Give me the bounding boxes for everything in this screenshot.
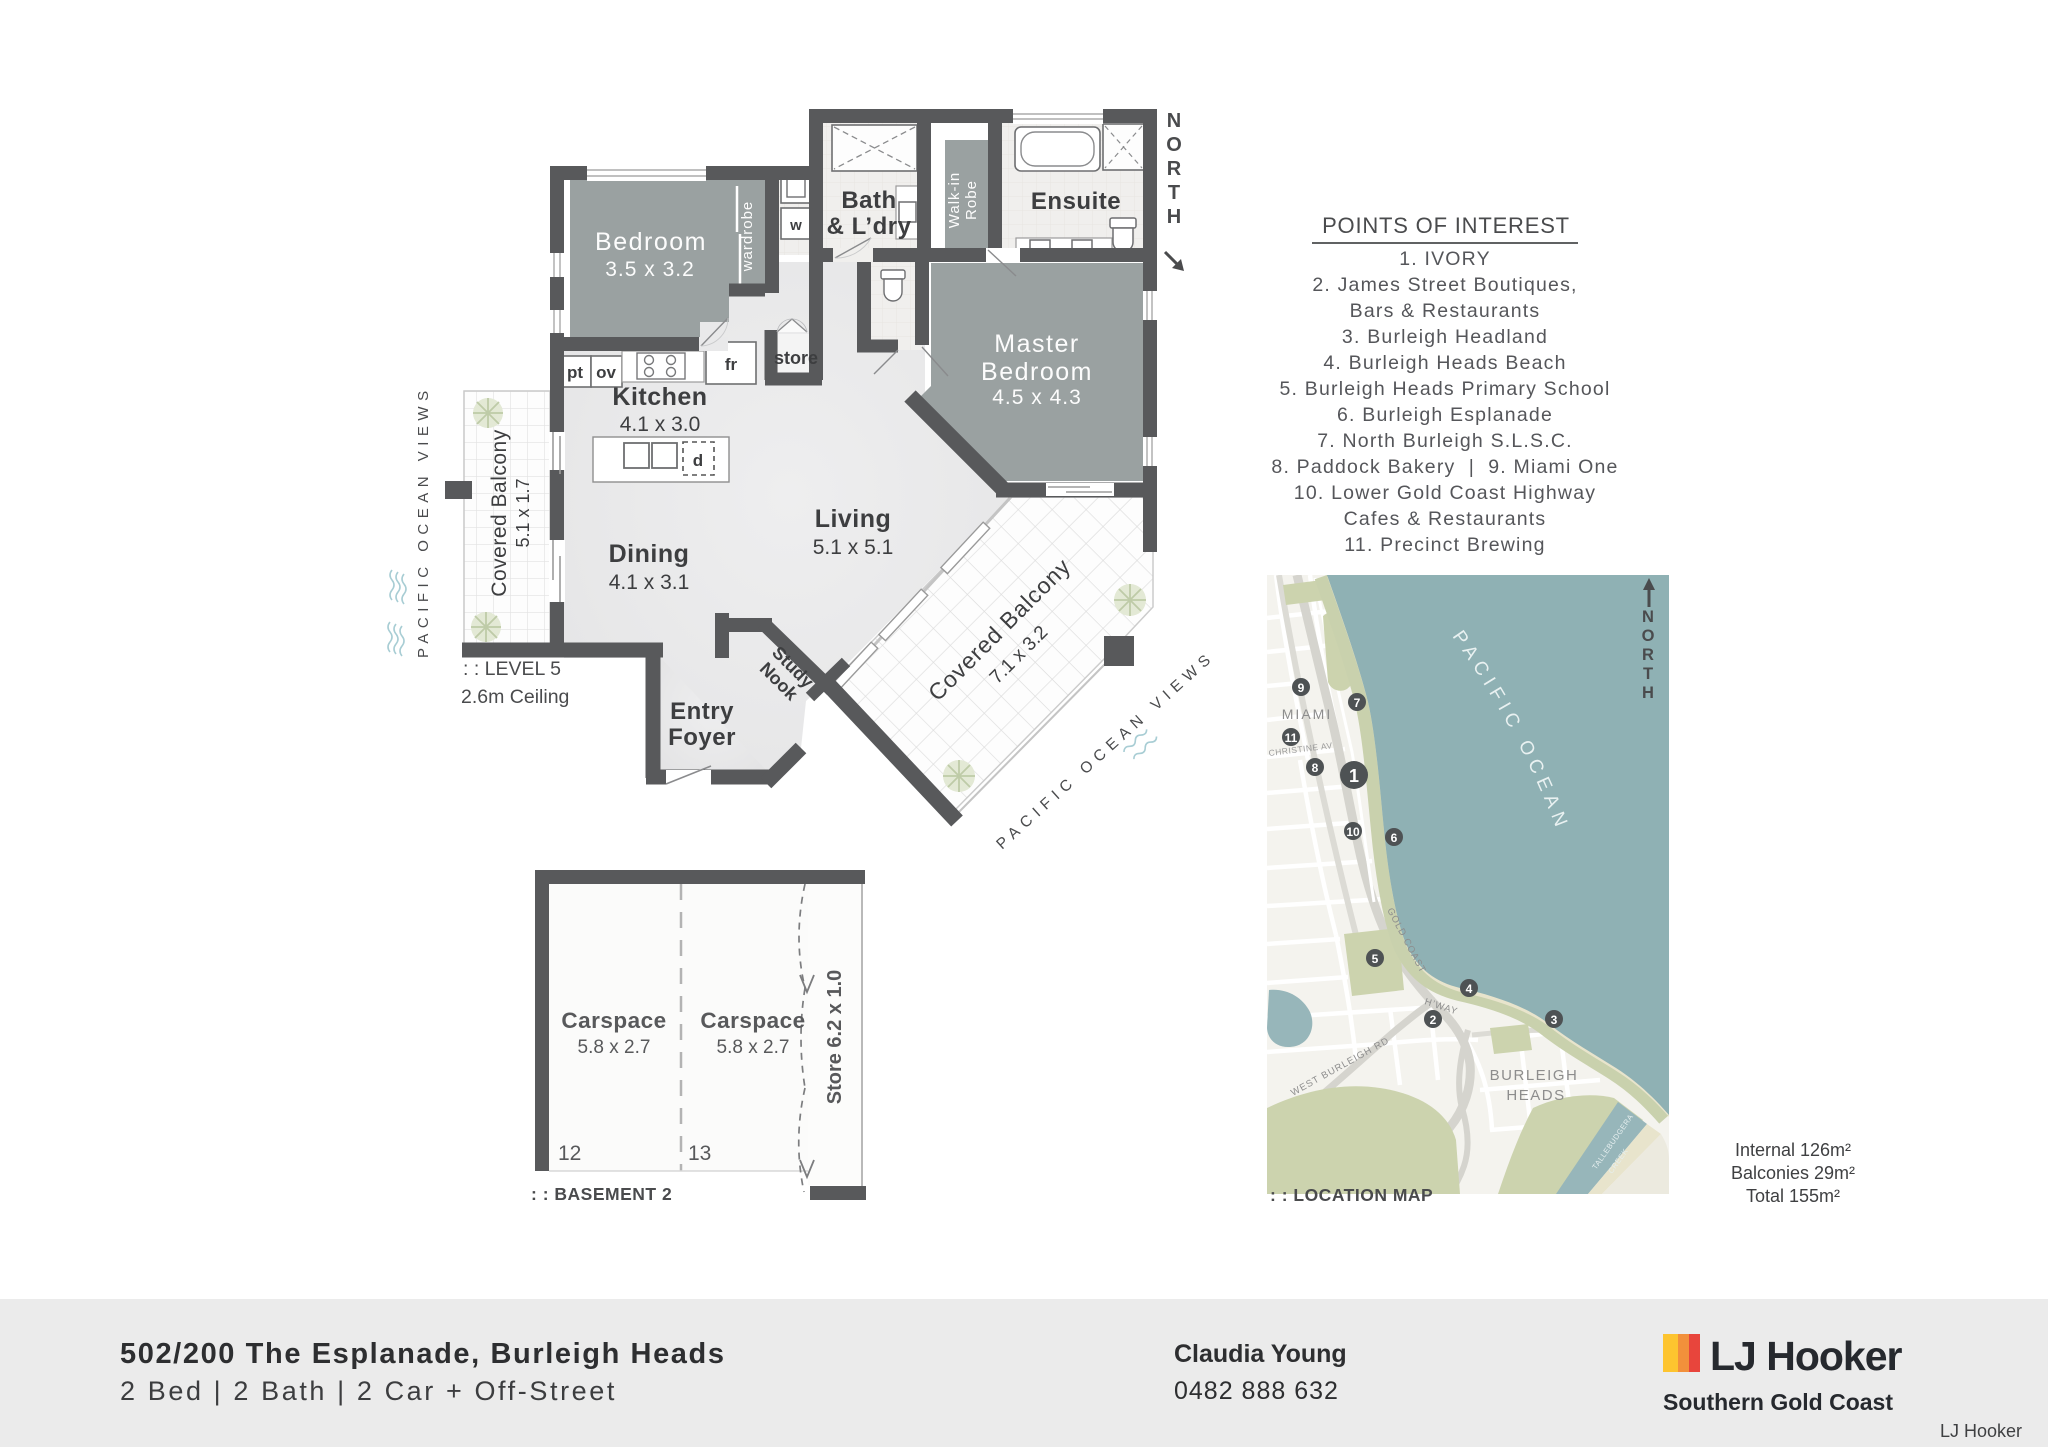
svg-text:1: 1 (1349, 766, 1359, 786)
svg-text:4: 4 (1466, 982, 1473, 996)
svg-text:MIAMI: MIAMI (1282, 706, 1332, 722)
svg-text:2 Bed | 2 Bath | 2 Car + Off-S: 2 Bed | 2 Bath | 2 Car + Off-Street (120, 1376, 617, 1406)
svg-text:Carspace: Carspace (700, 1008, 805, 1033)
svg-text:Covered Balcony: Covered Balcony (488, 429, 511, 596)
svg-text:5.1 x 1.7: 5.1 x 1.7 (513, 478, 533, 547)
svg-text:5.8 x 2.7: 5.8 x 2.7 (578, 1037, 651, 1058)
svg-text:3: 3 (1551, 1013, 1558, 1027)
svg-text:R: R (1167, 158, 1182, 180)
svg-text:Entry: Entry (670, 698, 734, 725)
svg-text:Robe: Robe (963, 180, 980, 220)
svg-text:PACIFIC OCEAN VIEWS: PACIFIC OCEAN VIEWS (415, 385, 432, 658)
svg-text:Southern Gold Coast: Southern Gold Coast (1663, 1389, 1893, 1415)
svg-text:2. James Street Boutiques,: 2. James Street Boutiques, (1312, 274, 1577, 296)
svg-text:& L’dry: & L’dry (827, 213, 912, 240)
svg-text:4. Burleigh Heads Beach: 4. Burleigh Heads Beach (1323, 352, 1566, 374)
svg-text:Living: Living (815, 505, 892, 533)
svg-text:4.1 x 3.1: 4.1 x 3.1 (609, 571, 690, 594)
svg-text:Foyer: Foyer (668, 724, 736, 751)
svg-text:O: O (1642, 627, 1655, 645)
svg-text:4.1 x 3.0: 4.1 x 3.0 (620, 413, 701, 436)
svg-text:3.5 x 3.2: 3.5 x 3.2 (605, 258, 695, 281)
svg-text:N: N (1167, 110, 1181, 132)
svg-text:LJ Hooker: LJ Hooker (1940, 1421, 2022, 1441)
svg-text:7: 7 (1354, 696, 1361, 710)
svg-text:Internal 126m²: Internal 126m² (1735, 1140, 1851, 1160)
svg-text:R: R (1642, 646, 1654, 664)
svg-text:d: d (693, 451, 703, 470)
svg-text:wardrobe: wardrobe (739, 201, 756, 273)
svg-text:3. Burleigh Headland: 3. Burleigh Headland (1342, 326, 1548, 348)
svg-text:11: 11 (1285, 731, 1298, 745)
svg-text:Total 155m²: Total 155m² (1746, 1186, 1840, 1206)
svg-text:12: 12 (558, 1142, 581, 1165)
svg-text:Bedroom: Bedroom (981, 358, 1093, 386)
svg-text:Balconies 29m²: Balconies 29m² (1731, 1163, 1855, 1183)
svg-text:Bedroom: Bedroom (595, 228, 707, 256)
svg-text:N: N (1642, 608, 1654, 626)
svg-text:Walk-in: Walk-in (946, 172, 963, 228)
svg-text:fr: fr (725, 355, 738, 374)
svg-text:POINTS OF INTEREST: POINTS OF INTEREST (1322, 213, 1570, 238)
svg-text:: : LOCATION MAP: : : LOCATION MAP (1270, 1185, 1433, 1205)
svg-text:Cafes & Restaurants: Cafes & Restaurants (1344, 508, 1547, 530)
svg-text:13: 13 (688, 1142, 711, 1165)
svg-text:9: 9 (1298, 681, 1305, 695)
svg-text:w: w (789, 217, 802, 234)
svg-text:5: 5 (1372, 952, 1379, 966)
svg-text:7. North Burleigh S.L.S.C.: 7. North Burleigh S.L.S.C. (1317, 430, 1573, 452)
svg-text:LJ Hooker: LJ Hooker (1710, 1333, 1903, 1379)
svg-text:5.8 x 2.7: 5.8 x 2.7 (717, 1037, 790, 1058)
svg-text:0482 888 632: 0482 888 632 (1174, 1377, 1339, 1405)
svg-text:2: 2 (1430, 1013, 1437, 1027)
svg-text:502/200 The Esplanade, Burleig: 502/200 The Esplanade, Burleigh Heads (120, 1338, 726, 1370)
svg-text:Carspace: Carspace (561, 1008, 666, 1033)
svg-text:HEADS: HEADS (1506, 1087, 1565, 1104)
svg-text:1. IVORY: 1. IVORY (1399, 248, 1491, 270)
svg-text:T: T (1643, 665, 1653, 683)
svg-text:Master: Master (994, 330, 1079, 358)
svg-text:Store 6.2 x 1.0: Store 6.2 x 1.0 (824, 970, 846, 1105)
svg-text:pt: pt (567, 363, 583, 382)
svg-text:10: 10 (1346, 825, 1360, 839)
svg-text:8: 8 (1312, 761, 1319, 775)
svg-text:T: T (1168, 182, 1180, 204)
svg-text:Bath: Bath (841, 187, 896, 214)
svg-text:2.6m Ceiling: 2.6m Ceiling (461, 686, 569, 708)
svg-text:O: O (1166, 134, 1182, 156)
svg-text:store: store (774, 348, 818, 368)
svg-text:: : LEVEL 5: : : LEVEL 5 (463, 658, 561, 680)
svg-text:11. Precinct Brewing: 11. Precinct Brewing (1344, 534, 1545, 556)
svg-text:4.5 x 4.3: 4.5 x 4.3 (992, 386, 1082, 409)
svg-text:6. Burleigh Esplanade: 6. Burleigh Esplanade (1337, 404, 1553, 426)
svg-text:Dining: Dining (609, 540, 690, 568)
svg-text:6: 6 (1391, 831, 1398, 845)
svg-text:5.1 x 5.1: 5.1 x 5.1 (813, 536, 894, 559)
svg-text:: : BASEMENT 2: : : BASEMENT 2 (531, 1184, 672, 1204)
svg-text:H: H (1642, 684, 1654, 702)
svg-text:BURLEIGH: BURLEIGH (1490, 1067, 1579, 1084)
svg-text:5. Burleigh Heads Primary Scho: 5. Burleigh Heads Primary School (1279, 378, 1610, 400)
svg-text:10. Lower Gold Coast Highway: 10. Lower Gold Coast Highway (1294, 482, 1596, 504)
svg-text:Bars & Restaurants: Bars & Restaurants (1350, 300, 1541, 322)
svg-text:Kitchen: Kitchen (612, 383, 707, 411)
svg-text:Ensuite: Ensuite (1031, 188, 1121, 215)
svg-text:Claudia Young: Claudia Young (1174, 1340, 1347, 1368)
svg-text:8. Paddock Bakery | 9. Miami: 8. Paddock Bakery | 9. Miami One (1271, 456, 1618, 478)
svg-text:ov: ov (596, 363, 616, 382)
svg-text:H: H (1167, 206, 1181, 228)
